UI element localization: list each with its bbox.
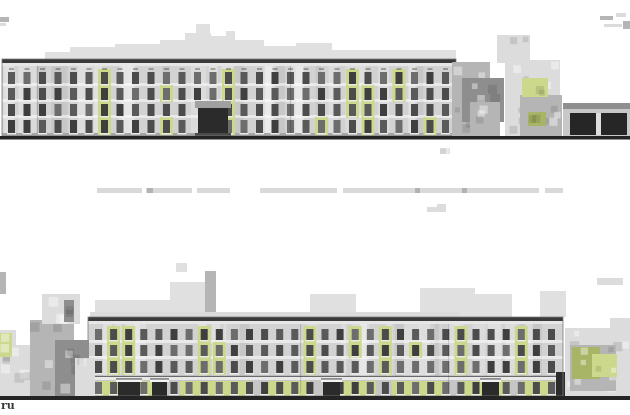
window-sill [38,116,47,117]
window [303,72,310,84]
window [427,88,434,100]
window-sill [395,133,404,134]
window [210,72,217,84]
window [322,329,329,340]
window [163,88,170,100]
skyline-silhouette [196,24,210,60]
building-entrance [198,108,228,134]
window [427,104,434,116]
window [457,382,464,394]
window [442,104,449,116]
window-sill [240,116,249,117]
tree-blob-texture [30,322,40,332]
window [241,72,248,84]
window [110,345,117,356]
window [55,88,62,100]
window [148,120,155,133]
window [533,361,540,373]
entrance-steps [195,133,231,136]
window [132,88,139,100]
window-sill [532,356,541,357]
window [442,88,449,100]
caption-row [97,188,563,193]
window [427,361,434,373]
window-sill [290,373,299,374]
skyline-silhouette [427,207,437,212]
window [303,88,310,100]
window-sill [426,84,435,85]
window-sill [271,116,280,117]
window-sill [348,133,357,134]
window [457,345,464,356]
window [194,88,201,100]
window-sill [317,84,326,85]
window [457,361,464,373]
window [246,345,253,356]
skyline-silhouette [597,278,623,285]
window-sill [317,100,326,101]
window [256,104,263,116]
tree-blob-texture [574,331,579,336]
window [39,88,46,100]
window-sill [260,394,269,395]
window-sill [364,100,373,101]
window-sill [230,356,239,357]
garage-door [601,113,627,135]
window-sill [215,356,224,357]
window-sill [162,116,171,117]
window [396,72,403,84]
window [412,361,419,373]
tree-blob-texture [1,363,11,373]
window-sill [245,340,254,341]
tree-blob-texture [488,85,497,94]
tree-blob-texture [0,344,8,352]
window [411,104,418,116]
skyline-silhouette [176,263,187,272]
window-sill [396,394,405,395]
window [457,329,464,340]
window [306,382,313,394]
window [231,382,238,394]
entrance-canopy [321,380,342,382]
window [396,88,403,100]
window-sill [426,116,435,117]
window [380,120,387,133]
window-sill [472,356,481,357]
caption-tick [415,188,420,193]
window-sill [351,394,360,395]
window-sill [100,116,109,117]
window-sill [209,84,218,85]
window-sill [131,116,140,117]
window [349,120,356,133]
window [548,345,555,356]
caption-tick [147,188,153,193]
window-sill [472,340,481,341]
window [95,345,102,356]
skyline-silhouette [600,16,613,20]
tree-blob-texture [551,106,558,113]
window [179,72,186,84]
window [473,361,480,373]
window [132,104,139,116]
window [412,329,419,340]
window-sill [124,356,133,357]
garage-post [596,113,601,135]
window-sill [456,340,465,341]
string-course-line [88,376,563,377]
window [272,104,279,116]
window [367,345,374,356]
window-sill [426,100,435,101]
window-sill [23,133,32,134]
window-sill [124,340,133,341]
window-sill [336,356,345,357]
window [276,329,283,340]
window [110,329,117,340]
window [55,120,62,133]
attic-vent [71,68,76,70]
window-sill [23,100,32,101]
window-sill [147,133,156,134]
attic-vent [25,68,30,70]
window [318,88,325,100]
window [70,88,77,100]
window [427,72,434,84]
tree-blob-texture [441,148,446,153]
cornice [2,63,456,66]
window-sill [224,84,233,85]
window-sill [154,356,163,357]
window [125,361,132,373]
window-sill [100,84,109,85]
caption-bar-segment [97,188,142,193]
window [246,382,253,394]
window [179,88,186,100]
window-sill [336,373,345,374]
window-sill [441,100,450,101]
window [216,361,223,373]
window-sill [109,394,118,395]
skyline-silhouette [616,13,626,17]
window-sill [411,373,420,374]
window-sill [38,84,47,85]
window [186,345,193,356]
window [171,345,178,356]
window-sill [366,356,375,357]
window [352,345,359,356]
window [367,329,374,340]
window-sill [271,133,280,134]
window [533,382,540,394]
ground-line [0,136,630,140]
window-sill [23,84,32,85]
window-sill [333,84,342,85]
window [473,382,480,394]
window [291,382,298,394]
window-sill [147,116,156,117]
window-sill [255,84,264,85]
window [503,382,510,394]
window [117,104,124,116]
window-sill [7,84,16,85]
window [318,120,325,133]
window [473,345,480,356]
window-sill [411,394,420,395]
tree-blob-texture [608,347,614,353]
window-sill [333,100,342,101]
window-sill [547,340,556,341]
entrance-canopy [195,101,231,108]
window-sill [100,100,109,101]
window-sill [109,340,118,341]
attic-vent [211,68,216,70]
window [427,329,434,340]
window-sill [230,340,239,341]
window [39,72,46,84]
attic-vent [381,68,386,70]
window [241,88,248,100]
tree-blob-texture [611,368,616,373]
window [276,382,283,394]
attic-vent [397,68,402,70]
window-sill [348,116,357,117]
window-sill [351,373,360,374]
skyline-silhouette [437,204,446,212]
attic-vent [335,68,340,70]
tree-blob-texture [45,360,53,368]
tree-blob-texture [67,349,74,356]
window [367,361,374,373]
window [365,120,372,133]
window [303,104,310,116]
window [380,72,387,84]
tree-blob [592,354,617,377]
window [117,120,124,133]
window [548,329,555,340]
tree-blob-texture [532,114,540,122]
window [24,120,31,133]
bottom-elevation [0,204,630,400]
window-sill [178,84,187,85]
caption-bar-segment [260,188,337,193]
window-sill [351,340,360,341]
window-sill [517,394,526,395]
window-sill [275,356,284,357]
window [334,72,341,84]
tree-blob-texture [14,373,24,383]
window-sill [185,340,194,341]
skyline-silhouette [540,291,566,317]
window-sill [215,373,224,374]
window-sill [395,116,404,117]
window-sill [379,100,388,101]
skyline-silhouette [115,44,165,60]
window [140,382,147,394]
window-sill [290,356,299,357]
window [194,72,201,84]
window-sill [162,100,171,101]
window-sill [426,340,435,341]
skyline-silhouette [332,50,456,60]
downspout [300,324,301,393]
window-sill [302,84,311,85]
window-sill [94,394,103,395]
window [261,345,268,356]
window-sill [185,373,194,374]
window-sill [69,100,78,101]
window-sill [215,394,224,395]
window [55,72,62,84]
caption-bar-segment [545,188,563,193]
window-sill [379,84,388,85]
window [201,382,208,394]
window [427,120,434,133]
window [171,329,178,340]
window-sill [178,100,187,101]
window [548,361,555,373]
window [39,104,46,116]
attic-vent [350,68,355,70]
tree-blob-texture [549,118,557,126]
window [276,361,283,373]
window [382,345,389,356]
window [442,120,449,133]
window [216,382,223,394]
attic-vent [226,68,231,70]
window [337,361,344,373]
window-sill [185,394,194,395]
skyline-silhouette [296,43,332,60]
window-sill [170,373,179,374]
window-sill [162,84,171,85]
tree-blob-texture [554,112,560,118]
window-sill [240,84,249,85]
window-sill [109,356,118,357]
entrance-canopy-edge [321,378,342,379]
window [148,104,155,116]
window-sill [410,133,419,134]
roof-band [88,317,563,321]
tree-blob-texture [510,37,517,44]
watermark-text: ru [1,400,15,412]
window [70,104,77,116]
window-sill [302,116,311,117]
window-sill [54,116,63,117]
window [186,361,193,373]
skyline-silhouette [0,17,9,22]
building-bottom [88,312,570,397]
tree-blob-texture [472,83,478,89]
window-sill [69,133,78,134]
window-sill [441,394,450,395]
attic-vent [242,68,247,70]
window [397,329,404,340]
window-sill [441,133,450,134]
window [272,72,279,84]
window-sill [547,373,556,374]
attic-vent [118,68,123,70]
window-sill [290,394,299,395]
window [171,382,178,394]
window [334,88,341,100]
window [396,120,403,133]
window [8,88,15,100]
window [125,329,132,340]
window [231,329,238,340]
window-sill [245,394,254,395]
window-sill [302,133,311,134]
window-sill [410,116,419,117]
tree-blob-texture [574,379,580,385]
window-sill [456,394,465,395]
window [231,345,238,356]
window-sill [502,340,511,341]
caption-tick [462,188,467,193]
window [86,72,93,84]
window [334,104,341,116]
window [397,361,404,373]
garage-roof [563,103,630,109]
window [24,88,31,100]
tree-blob-texture [49,297,59,307]
window [86,88,93,100]
window [337,329,344,340]
window [518,361,525,373]
window-sill [69,84,78,85]
window-sill [271,84,280,85]
window-sill [131,100,140,101]
window [225,72,232,84]
attic-vent [412,68,417,70]
attic-vent [40,68,45,70]
caption-bar-segment [197,188,230,193]
window-sill [139,340,148,341]
window-sill [178,116,187,117]
attic-vent [180,68,185,70]
window-sill [441,84,450,85]
window [216,329,223,340]
window-sill [100,133,109,134]
attic-vent [428,68,433,70]
building-entrance [482,382,499,396]
window [352,329,359,340]
ground-line [0,396,630,400]
window-sill [381,373,390,374]
window-sill [69,116,78,117]
window [186,329,193,340]
window [125,345,132,356]
window-sill [410,100,419,101]
window-sill [396,373,405,374]
window-sill [305,373,314,374]
window [110,382,117,394]
window-sill [255,100,264,101]
window-sill [517,373,526,374]
window-sill [426,394,435,395]
window-sill [260,340,269,341]
window [179,104,186,116]
window-sill [116,100,125,101]
window [8,104,15,116]
window [261,382,268,394]
window-sill [487,340,496,341]
window-sill [395,100,404,101]
tree-blob-texture [477,95,485,103]
attic-vent [149,68,154,70]
tree-blob-texture [42,381,50,389]
